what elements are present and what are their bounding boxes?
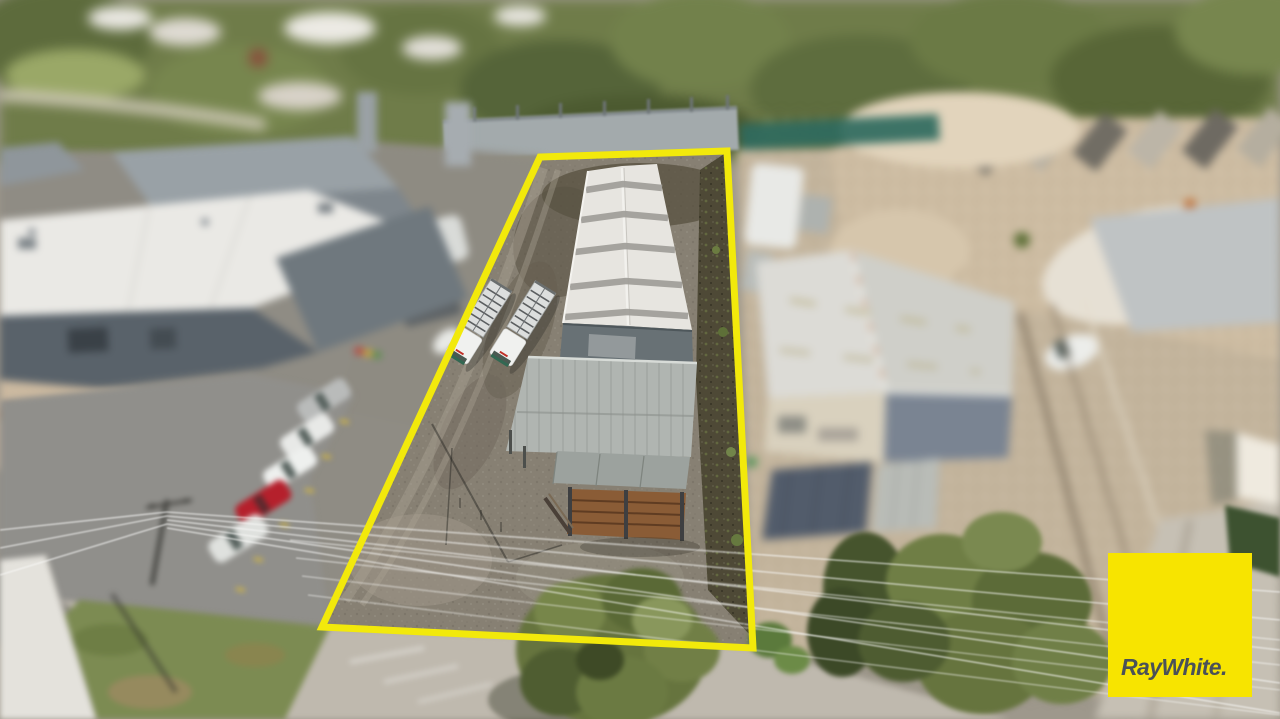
small-grey-roof: [872, 458, 940, 532]
roller-door: [588, 334, 636, 359]
awning-post: [509, 430, 512, 454]
raywhite-wordmark: RayWhite.: [1121, 654, 1227, 681]
green-bin: [747, 457, 757, 467]
dark-blue-leanto-roof: [762, 462, 872, 540]
photo-scene: [0, 0, 1280, 719]
awning-carport: [506, 350, 697, 468]
raywhite-logo: RayWhite.: [1108, 553, 1252, 697]
chimney: [357, 92, 377, 152]
awning-post: [523, 446, 526, 468]
aerial-property-photo: RayWhite.: [0, 0, 1280, 719]
white-box-truck: [744, 163, 804, 250]
